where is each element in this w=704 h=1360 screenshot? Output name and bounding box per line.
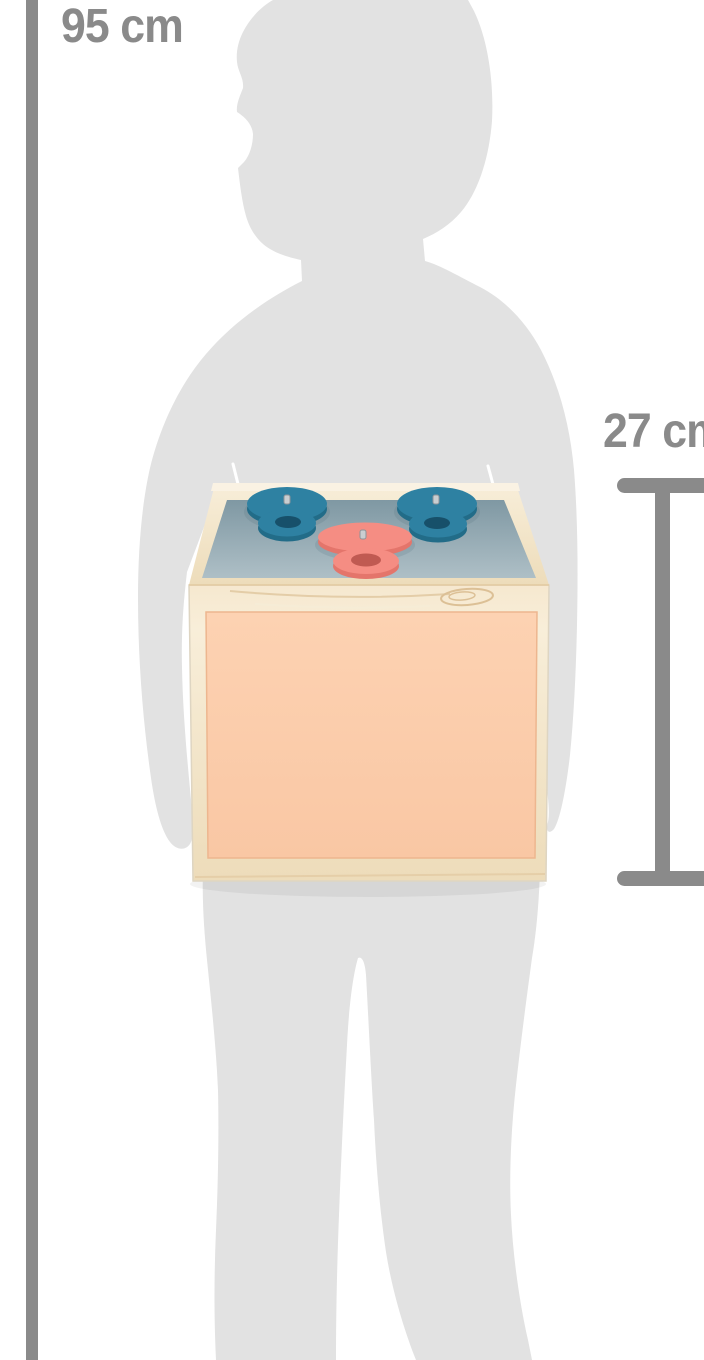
ring-hole <box>351 554 381 567</box>
metal-pin <box>360 530 366 539</box>
box-top-rim-highlight <box>211 483 520 491</box>
box-height-measure-cap-bottom <box>617 871 704 886</box>
child-silhouette-legs <box>203 868 540 1360</box>
child-height-measure-bar <box>26 0 38 1360</box>
toy-box <box>189 483 549 897</box>
coral-ring-center <box>333 548 399 579</box>
ring-hole <box>275 516 301 528</box>
blue-ring-left <box>258 510 316 542</box>
box-height-measure-line <box>655 481 670 884</box>
box-front-panel <box>206 612 537 858</box>
product-size-illustration: 95 cm 27 cm <box>0 0 704 1360</box>
illustration-canvas <box>0 0 704 1360</box>
metal-pin <box>433 495 439 504</box>
metal-pin <box>284 495 290 504</box>
child-height-label: 95 cm <box>61 3 183 51</box>
ring-hole <box>424 517 450 529</box>
blue-ring-right <box>409 511 467 543</box>
box-height-label: 27 cm <box>603 408 704 456</box>
box-height-measure-cap-top <box>617 478 704 493</box>
